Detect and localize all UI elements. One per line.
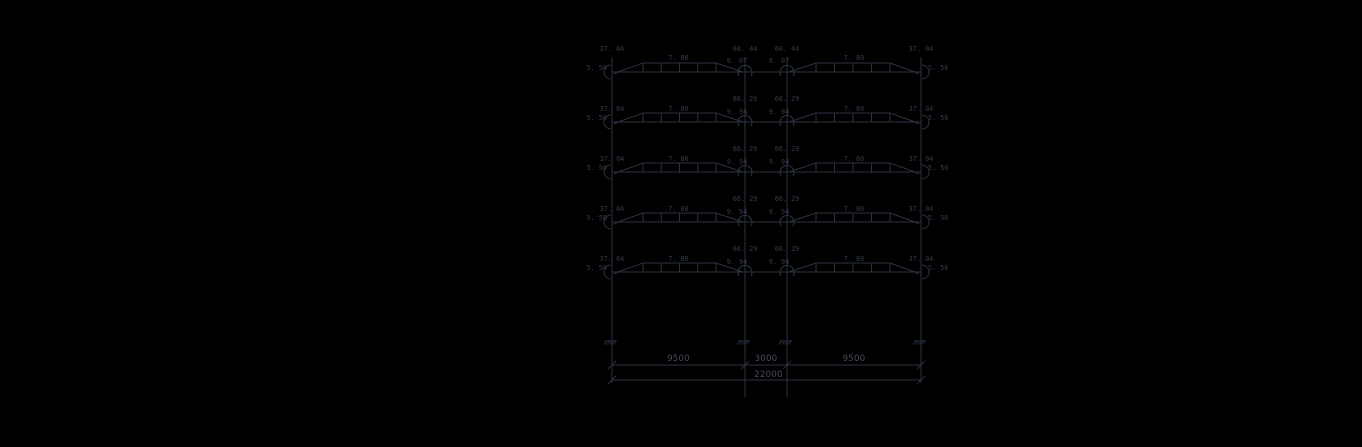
- beam-outer-end-moment-label: 5. 56: [587, 114, 607, 122]
- inner-column-moment-label: 66. 29: [775, 95, 800, 103]
- inner-column-moment-label: 60. 44: [733, 45, 758, 53]
- beam-inner-end-moment-label: 9. 94: [727, 208, 747, 216]
- beam-midspan-moment-label: 7. 80: [844, 255, 864, 263]
- beam-inner-end-moment-label: 9. 94: [727, 108, 747, 116]
- outer-column-moment-label: 37. 04: [909, 155, 934, 163]
- beam-midspan-moment-label: 7. 80: [668, 255, 688, 263]
- inner-column-moment-label: 60. 44: [775, 45, 800, 53]
- beam-midspan-moment-label: 7. 80: [844, 105, 864, 113]
- beam-outer-end-moment-label: 5. 56: [587, 164, 607, 172]
- beam-midspan-moment-label: 7. 80: [844, 54, 864, 62]
- beam-outer-end-moment-label: 5. 56: [928, 164, 948, 172]
- inner-column-moment-label: 66. 29: [775, 245, 800, 253]
- cad-viewport[interactable]: 37. 0437. 0460. 4460. 447. 807. 809. 079…: [0, 0, 1362, 447]
- outer-column-moment-label: 37. 04: [600, 155, 625, 163]
- beam-outer-end-moment-label: 5. 56: [587, 64, 607, 72]
- inner-column-moment-label: 66. 29: [733, 145, 758, 153]
- beam-inner-end-moment-label: 9. 94: [727, 258, 747, 266]
- outer-column-moment-label: 37. 04: [600, 255, 625, 263]
- beam-outer-end-moment-label: 5. 56: [928, 214, 948, 222]
- beam-outer-end-moment-label: 5. 56: [928, 114, 948, 122]
- outer-column-moment-label: 37. 04: [909, 205, 934, 213]
- beam-midspan-moment-label: 7. 80: [668, 155, 688, 163]
- beam-inner-end-moment-label: 9. 94: [727, 158, 747, 166]
- outer-column-moment-label: 37. 04: [909, 45, 934, 53]
- beam-midspan-moment-label: 7. 80: [668, 105, 688, 113]
- beam-midspan-moment-label: 7. 80: [844, 155, 864, 163]
- beam-inner-end-moment-label: 9. 94: [769, 258, 789, 266]
- beam-inner-end-moment-label: 9. 94: [769, 158, 789, 166]
- inner-column-moment-label: 66. 29: [733, 195, 758, 203]
- beam-inner-end-moment-label: 9. 07: [727, 57, 747, 65]
- frame-moment-diagram: 37. 0437. 0460. 4460. 447. 807. 809. 079…: [0, 0, 1362, 447]
- beam-inner-end-moment-label: 9. 94: [769, 108, 789, 116]
- beam-outer-end-moment-label: 5. 56: [587, 264, 607, 272]
- outer-column-moment-label: 37. 04: [909, 255, 934, 263]
- span-dimension-label: 9500: [843, 354, 866, 364]
- inner-column-moment-label: 66. 29: [733, 245, 758, 253]
- span-dimension-label: 9500: [667, 354, 690, 364]
- outer-column-moment-label: 37. 04: [600, 105, 625, 113]
- beam-inner-end-moment-label: 9. 07: [769, 57, 789, 65]
- outer-column-moment-label: 37. 04: [909, 105, 934, 113]
- inner-column-moment-label: 66. 29: [733, 95, 758, 103]
- beam-outer-end-moment-label: 5. 56: [928, 64, 948, 72]
- beam-outer-end-moment-label: 5. 56: [587, 214, 607, 222]
- total-dimension-label: 22000: [754, 370, 783, 380]
- inner-column-moment-label: 66. 29: [775, 195, 800, 203]
- span-dimension-label: 3000: [755, 354, 778, 364]
- beam-outer-end-moment-label: 5. 56: [928, 264, 948, 272]
- beam-midspan-moment-label: 7. 80: [668, 54, 688, 62]
- beam-midspan-moment-label: 7. 80: [668, 205, 688, 213]
- outer-column-moment-label: 37. 04: [600, 205, 625, 213]
- beam-inner-end-moment-label: 9. 94: [769, 208, 789, 216]
- inner-column-moment-label: 66. 29: [775, 145, 800, 153]
- outer-column-moment-label: 37. 04: [600, 45, 625, 53]
- beam-midspan-moment-label: 7. 80: [844, 205, 864, 213]
